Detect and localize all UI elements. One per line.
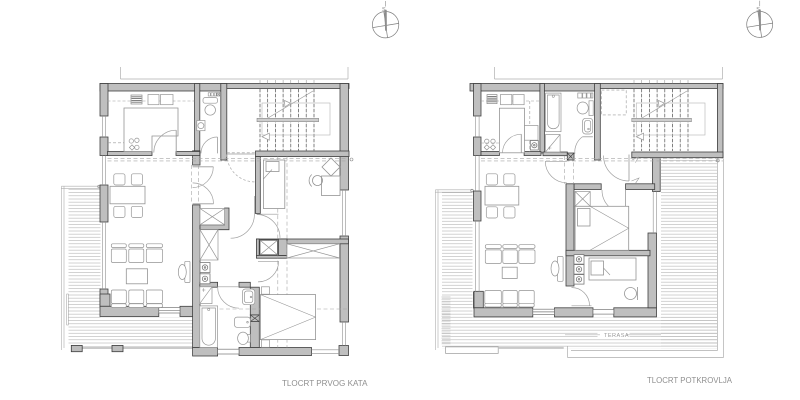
svg-text:S: S [382, 7, 386, 13]
svg-text:S: S [756, 7, 760, 13]
svg-text:TLOCRT POTKROVLJA: TLOCRT POTKROVLJA [647, 375, 732, 385]
svg-text:TERASA: TERASA [604, 333, 629, 339]
svg-text:TLOCRT PRVOG KATA: TLOCRT PRVOG KATA [282, 378, 368, 388]
